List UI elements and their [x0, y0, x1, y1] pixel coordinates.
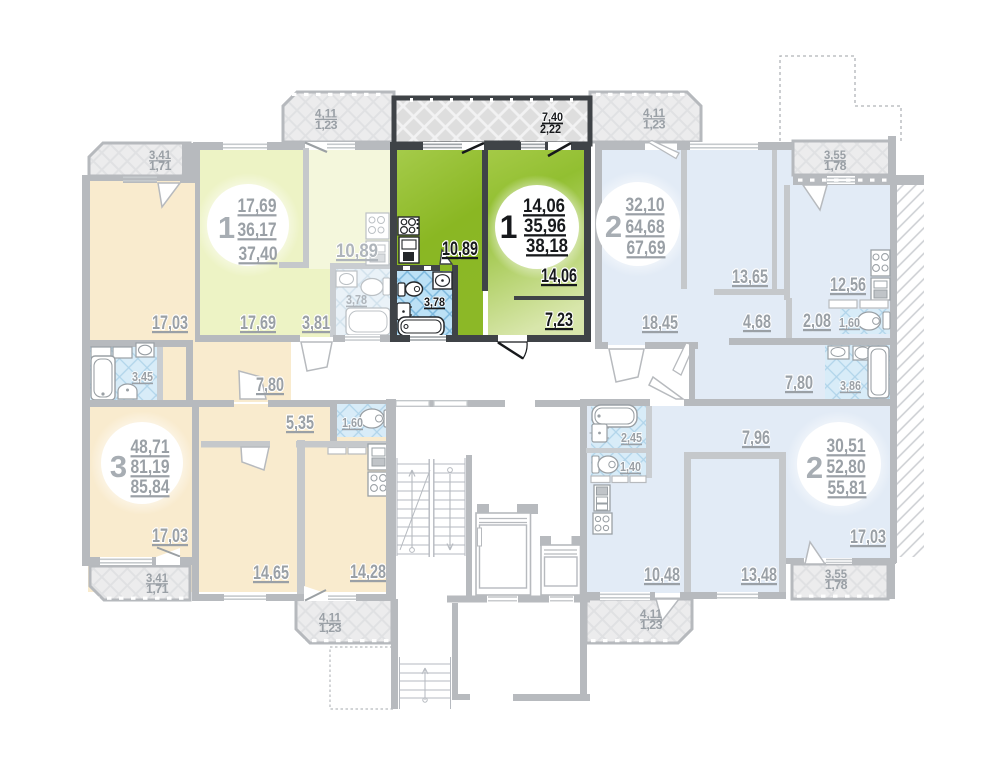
svg-text:1,60: 1,60 [839, 316, 860, 330]
svg-text:18,45: 18,45 [642, 313, 678, 334]
svg-text:35,96: 35,96 [524, 216, 566, 237]
svg-text:1,23: 1,23 [315, 120, 337, 132]
svg-text:85,84: 85,84 [131, 477, 170, 498]
svg-text:67,69: 67,69 [627, 238, 666, 259]
svg-text:10,48: 10,48 [644, 565, 680, 586]
svg-text:1,71: 1,71 [146, 584, 169, 596]
svg-text:2,22: 2,22 [540, 122, 561, 136]
svg-text:17,03: 17,03 [850, 527, 886, 548]
svg-text:7,80: 7,80 [785, 373, 813, 394]
svg-text:32,10: 32,10 [626, 195, 665, 216]
svg-text:2: 2 [605, 209, 621, 244]
svg-text:52,80: 52,80 [827, 457, 866, 478]
svg-text:1,40: 1,40 [620, 460, 641, 474]
svg-text:13,65: 13,65 [732, 267, 768, 288]
svg-text:1,71: 1,71 [149, 161, 172, 173]
svg-text:38,18: 38,18 [526, 236, 568, 257]
svg-text:14,28: 14,28 [350, 562, 386, 583]
svg-text:37,40: 37,40 [239, 244, 278, 265]
svg-text:3: 3 [110, 449, 127, 484]
svg-text:5,35: 5,35 [286, 413, 314, 434]
svg-text:36,17: 36,17 [238, 220, 277, 241]
svg-text:17,03: 17,03 [152, 526, 188, 547]
svg-text:1: 1 [218, 210, 235, 245]
svg-text:12,56: 12,56 [830, 275, 866, 296]
svg-text:30,51: 30,51 [827, 436, 866, 457]
svg-text:17,69: 17,69 [240, 313, 276, 334]
svg-text:3,45: 3,45 [132, 370, 153, 384]
svg-text:10,89: 10,89 [442, 239, 478, 260]
svg-text:7,80: 7,80 [256, 375, 284, 396]
svg-text:14,65: 14,65 [253, 563, 289, 584]
svg-text:1,23: 1,23 [640, 620, 662, 632]
svg-text:17,69: 17,69 [238, 196, 277, 217]
svg-text:2,08: 2,08 [803, 311, 831, 332]
svg-text:14,06: 14,06 [541, 266, 577, 287]
svg-text:1: 1 [500, 209, 517, 245]
svg-text:64,68: 64,68 [626, 217, 665, 238]
svg-text:7,96: 7,96 [742, 428, 770, 449]
svg-text:1,78: 1,78 [824, 161, 847, 173]
svg-text:3,78: 3,78 [424, 295, 445, 309]
svg-text:48,71: 48,71 [131, 437, 170, 458]
svg-text:13,48: 13,48 [741, 565, 777, 586]
svg-text:3,86: 3,86 [840, 379, 861, 393]
svg-text:10,89: 10,89 [336, 241, 378, 262]
svg-text:2: 2 [806, 450, 822, 485]
svg-text:1,23: 1,23 [643, 120, 665, 132]
svg-text:1,78: 1,78 [825, 580, 848, 592]
svg-text:3,81: 3,81 [302, 313, 330, 334]
svg-text:1,23: 1,23 [319, 623, 341, 635]
svg-text:1,60: 1,60 [342, 416, 363, 430]
svg-text:4,68: 4,68 [743, 312, 771, 333]
svg-text:81,19: 81,19 [131, 457, 170, 478]
svg-text:2,45: 2,45 [621, 431, 642, 445]
svg-text:55,81: 55,81 [828, 478, 867, 499]
svg-text:7,23: 7,23 [545, 310, 573, 331]
svg-text:14,06: 14,06 [523, 196, 565, 217]
svg-text:3,78: 3,78 [346, 293, 367, 307]
svg-text:17,03: 17,03 [152, 313, 188, 334]
